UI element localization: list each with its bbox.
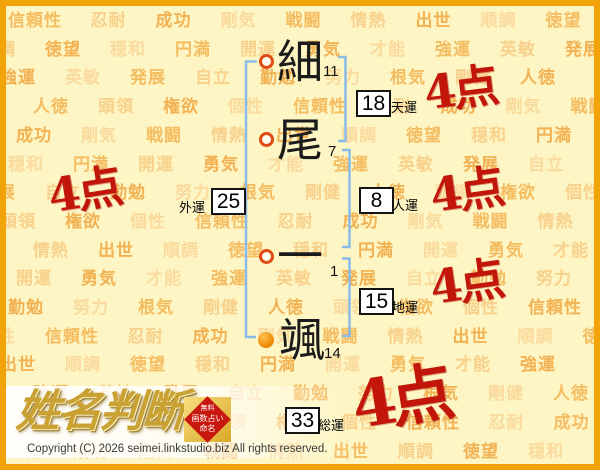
watermark-word: 円満	[358, 236, 394, 261]
seimei-handan-result-page: 信頼性忍耐成功剛気戦闘情熱出世順調徳望順調徳望穏和円満開運勇気才能強運英敏発展強…	[0, 0, 600, 470]
watermark-word: 徳望	[546, 6, 582, 31]
watermark-word: 剛気	[81, 121, 117, 146]
watermark-word: 戦闘	[323, 322, 359, 347]
watermark-word: 勇気	[81, 264, 117, 289]
watermark-word: 信頼性	[45, 322, 99, 347]
watermark-word: 剛健	[203, 293, 239, 318]
person-luck-value-box: 8	[359, 187, 394, 214]
watermark-word: 信頼性	[8, 6, 62, 31]
watermark-word: 個性	[228, 92, 264, 117]
watermark-word: 努力	[73, 293, 109, 318]
watermark-word: 才能	[0, 379, 4, 404]
watermark-word: 穏和	[471, 121, 507, 146]
name-char-2: 尾	[277, 117, 323, 163]
watermark-word: 成功	[193, 322, 229, 347]
watermark-word: 才能	[370, 35, 406, 60]
watermark-word: 人徳	[33, 92, 69, 117]
watermark-word: 強運	[520, 350, 556, 375]
char-marker-circle	[259, 249, 274, 264]
watermark-word: 成功	[16, 121, 52, 146]
watermark-word: 出世	[453, 322, 489, 347]
watermark-word: 穏和	[8, 150, 44, 175]
watermark-word: 個性	[130, 207, 166, 232]
watermark-word: 強運	[333, 150, 369, 175]
watermark-word: 人徳	[520, 63, 556, 88]
watermark-word: 徳望	[463, 437, 499, 462]
name-char-4: 颯	[279, 317, 325, 363]
watermark-word: 信頼性	[528, 293, 582, 318]
watermark-word: 戦闘	[146, 121, 182, 146]
watermark-word: 頭領	[98, 92, 134, 117]
watermark-word: 剛気	[506, 92, 542, 117]
watermark-word: 個性	[0, 322, 16, 347]
watermark-word: 英敏	[500, 35, 536, 60]
watermark-word: 順調	[163, 236, 199, 261]
watermark-word: 忍耐	[91, 6, 127, 31]
watermark-word: 開運	[16, 264, 52, 289]
watermark-word: 戦闘	[0, 236, 4, 261]
stroke-count-2: 7	[328, 143, 336, 160]
watermark-word: 勤勉	[8, 293, 44, 318]
watermark-word: 才能	[553, 236, 589, 261]
free-naming-stamp[interactable]: 無料 画数占い 命名	[184, 397, 231, 442]
watermark-word: 順調	[518, 322, 554, 347]
char-marker-circle	[259, 54, 274, 69]
watermark-word: 成功	[156, 6, 192, 31]
watermark-word: 発展	[341, 264, 377, 289]
char-marker-circle-selected	[258, 332, 274, 348]
watermark-word: 出世	[0, 350, 36, 375]
total-luck-score: 4点	[348, 361, 453, 439]
watermark-word: 才能	[146, 264, 182, 289]
watermark-word: 忍耐	[128, 322, 164, 347]
watermark-word: 忍耐	[278, 207, 314, 232]
watermark-word: 強運	[211, 264, 247, 289]
watermark-word: 剛健	[0, 92, 4, 117]
watermark-word: 戦闘	[571, 92, 600, 117]
watermark-word: 情熱	[388, 322, 424, 347]
total-luck-value-box: 33	[285, 407, 320, 434]
watermark-word: 英敏	[65, 63, 101, 88]
earth-luck-value-box: 15	[359, 288, 394, 315]
watermark-word: 忍耐	[489, 408, 525, 433]
watermark-word: 情熱	[538, 207, 574, 232]
heaven-luck-value-box: 18	[356, 90, 391, 117]
watermark-word: 発展	[130, 63, 166, 88]
watermark-word: 順調	[0, 35, 16, 60]
watermark-word: 穏和	[195, 350, 231, 375]
watermark-word: 自立	[528, 150, 564, 175]
heaven-luck-score: 4点	[421, 62, 498, 116]
watermark-word: 才能	[455, 350, 491, 375]
watermark-word: 順調	[341, 121, 377, 146]
stroke-count-4: 14	[324, 345, 341, 362]
watermark-word: 情熱	[33, 236, 69, 261]
watermark-word: 権欲	[163, 92, 199, 117]
watermark-word: 穏和	[528, 437, 564, 462]
watermark-word: 強運	[0, 63, 36, 88]
watermark-word: 徳望	[406, 121, 442, 146]
watermark-word: 順調	[481, 6, 517, 31]
watermark-word: 個性	[565, 178, 600, 203]
watermark-word: 戦闘	[286, 6, 322, 31]
stamp-text: 無料 画数占い 命名	[184, 397, 231, 442]
watermark-word: 発展	[565, 35, 600, 60]
watermark-word: 発展	[0, 178, 16, 203]
stamp-line-2: 画数占い	[192, 414, 224, 424]
char-marker-circle	[259, 132, 274, 147]
stroke-count-1: 11	[323, 63, 339, 80]
watermark-word: 権欲	[500, 178, 536, 203]
watermark-word: 出世	[98, 236, 134, 261]
watermark-word: 開運	[138, 150, 174, 175]
watermark-word: 剛気	[221, 6, 257, 31]
site-logo[interactable]: 姓名判断	[14, 388, 185, 436]
watermark-word: 勇気	[203, 150, 239, 175]
person-luck-score: 4点	[427, 163, 505, 219]
watermark-word: 順調	[65, 350, 101, 375]
watermark-word: 順調	[398, 437, 434, 462]
stamp-line-3: 命名	[200, 424, 216, 434]
watermark-word: 情熱	[351, 6, 387, 31]
watermark-word: 出世	[416, 6, 452, 31]
watermark-word: 自立	[195, 63, 231, 88]
outer-luck-value-box: 25	[211, 188, 246, 215]
watermark-word: 円満	[536, 121, 572, 146]
watermark-word: 徳望	[583, 322, 600, 347]
watermark-word: 成功	[554, 408, 590, 433]
name-char-3: 一	[277, 233, 323, 279]
earth-luck-score: 4点	[427, 255, 505, 311]
outer-luck-label: 外運	[179, 197, 205, 216]
outer-luck-score: 4点	[45, 163, 123, 220]
watermark-word: 強運	[435, 35, 471, 60]
heaven-luck-label: 天運	[391, 97, 417, 116]
person-luck-label: 人運	[392, 195, 418, 214]
watermark-word: 根気	[138, 293, 174, 318]
name-char-1: 細	[277, 39, 323, 85]
watermark-word: 剛健	[488, 379, 524, 404]
total-luck-label: 総運	[318, 415, 344, 434]
watermark-word: 円満	[175, 35, 211, 60]
watermark-word: 穏和	[110, 35, 146, 60]
stroke-count-3: 1	[330, 263, 338, 280]
watermark-word: 徳望	[130, 350, 166, 375]
watermark-word: 剛健	[305, 178, 341, 203]
watermark-word: 頭領	[0, 207, 36, 232]
earth-luck-label: 地運	[392, 297, 418, 316]
watermark-word: 情熱	[211, 121, 247, 146]
watermark-word: 努力	[536, 264, 572, 289]
copyright-text: Copyright (C) 2026 seimei.linkstudio.biz…	[27, 443, 327, 455]
watermark-word: 徳望	[45, 35, 81, 60]
watermark-word: 人徳	[553, 379, 589, 404]
stamp-line-1: 無料	[201, 405, 215, 414]
